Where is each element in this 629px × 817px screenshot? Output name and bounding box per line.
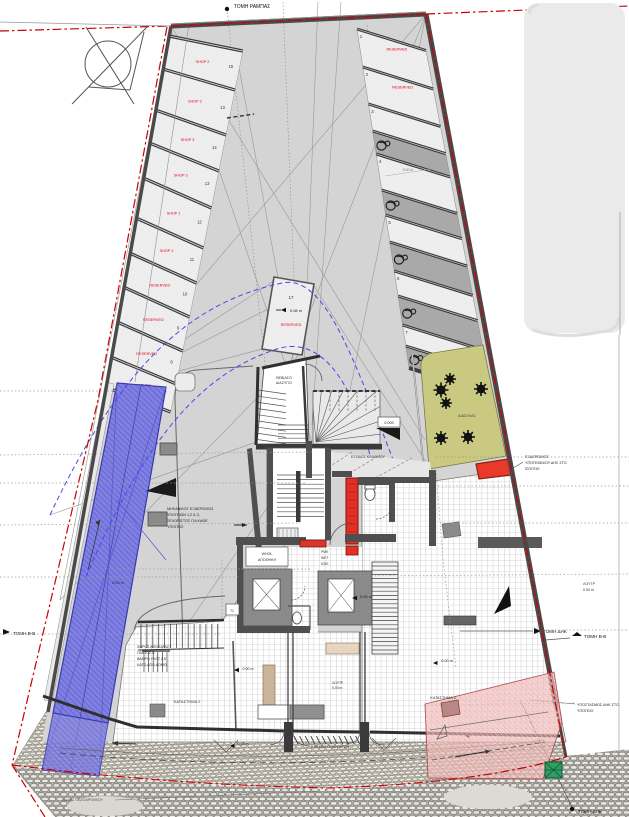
svg-text:ΥΠΟΓΕΙΟ: ΥΠΟΓΕΙΟ [577, 709, 594, 713]
svg-text:RESERVED: RESERVED [386, 47, 407, 51]
svg-text:0.00 m: 0.00 m [360, 594, 373, 599]
svg-text:0.08 m: 0.08 m [290, 308, 303, 313]
svg-text:ΚΑΤΑΣΤΗΜΑ 3: ΚΑΤΑΣΤΗΜΑ 3 [430, 696, 455, 700]
svg-text:RESERVED: RESERVED [143, 318, 164, 322]
svg-text:10: 10 [183, 292, 188, 297]
svg-text:RESERVED: RESERVED [392, 85, 413, 89]
svg-text:ΥΠΟΣΤΑΣΜΟΣ ΔΗΚ ΣΤΟ: ΥΠΟΣΤΑΣΜΟΣ ΔΗΚ ΣΤΟ [577, 703, 619, 707]
svg-text:WHOL: WHOL [262, 552, 273, 556]
svg-text:SHOP 1: SHOP 1 [159, 249, 173, 253]
svg-text:SHOP 2: SHOP 2 [188, 100, 202, 104]
svg-text:ΤΟΜΗ ΡΑΜΠΑΣ: ΤΟΜΗ ΡΑΜΠΑΣ [234, 4, 271, 10]
svg-text:8 ΘΕΣΕΙΣ ΠΟΔΗΛΑΤΩΝ: 8 ΘΕΣΕΙΣ ΠΟΔΗΛΑΤΩΝ [311, 745, 350, 749]
svg-text:ΑΠΟΘΗΚΗ: ΑΠΟΘΗΚΗ [258, 558, 277, 562]
svg-text:0.00 m: 0.00 m [112, 581, 124, 585]
svg-text:13: 13 [205, 181, 210, 186]
svg-text:ΛΟΥΤΡ: ΛΟΥΤΡ [583, 582, 596, 586]
svg-text:ΥΠΟΓΕΙΩΝ 1,2 & 3,: ΥΠΟΓΕΙΩΝ 1,2 & 3, [167, 513, 200, 517]
svg-text:RESERVED: RESERVED [149, 284, 170, 288]
svg-text:ΧΩΡΟΣ ΑΠΟΚΑΤΑΣΤ.: ΧΩΡΟΣ ΑΠΟΚΑΤΑΣΤ. [137, 645, 172, 649]
svg-text:ΤΟΜΗ ΔΗΚ: ΤΟΜΗ ΔΗΚ [578, 809, 603, 814]
svg-text:SHOP 2: SHOP 2 [195, 60, 209, 64]
svg-text:SHOP 1: SHOP 1 [167, 212, 181, 216]
svg-text:ΕΞΟΔΟΣ ΚΙΝΔΥΝΟΥ: ΕΞΟΔΟΣ ΚΙΝΔΥΝΟΥ [351, 455, 386, 459]
svg-text:13: 13 [220, 105, 225, 110]
svg-text:ΒΕΒΙΑΣΟ: ΒΕΒΙΑΣΟ [276, 376, 292, 380]
svg-text:15: 15 [229, 64, 234, 69]
svg-text:11: 11 [190, 257, 195, 262]
svg-text:ΤΟΜΗ Β-Β: ΤΟΜΗ Β-Β [13, 631, 35, 636]
svg-text:ΚΣΙΕ: ΚΣΙΕ [321, 562, 329, 566]
svg-text:0.00 m: 0.00 m [243, 667, 254, 671]
svg-text:0.00 m: 0.00 m [583, 588, 594, 592]
svg-text:RESERVED: RESERVED [281, 323, 302, 327]
svg-text:ΡΜΚ: ΡΜΚ [321, 550, 329, 554]
svg-text:ΞΕΧΩΡΙΣΤΟΣ ΓΙΑ ΚΑΘΕ: ΞΕΧΩΡΙΣΤΟΣ ΓΙΑ ΚΑΘΕ [167, 519, 208, 523]
svg-text:ΚΑΤΩ ΑΠΟ ΔΟΜΟ: ΚΑΤΩ ΑΠΟ ΔΟΜΟ [137, 663, 167, 667]
svg-text:ΒΑΘΡΟ ΥΛΟΤ 2.5: ΒΑΘΡΟ ΥΛΟΤ 2.5 [137, 657, 166, 661]
svg-text:12: 12 [197, 220, 202, 225]
svg-text:5.00 m: 5.00 m [403, 168, 414, 172]
svg-text:ΔΙΑΣΠΛΑΣ: ΔΙΑΣΠΛΑΣ [458, 414, 476, 418]
svg-text:ΤΟΜΗ Β-Β: ΤΟΜΗ Β-Β [584, 634, 606, 639]
svg-text:17: 17 [288, 295, 294, 300]
svg-text:ΠΛΑΤΟΣ 5.: ΠΛΑΤΟΣ 5. [137, 651, 155, 655]
svg-text:0.00 m: 0.00 m [332, 686, 343, 690]
svg-text:0.04 m: 0.04 m [238, 742, 249, 746]
svg-text:ΥΠΟΓΕΙΟ: ΥΠΟΓΕΙΟ [167, 525, 184, 529]
svg-text:ΚΑΤΑΣΤΗΜΑ 2: ΚΑΤΑΣΤΗΜΑ 2 [174, 699, 202, 704]
svg-text:0.00 m: 0.00 m [441, 659, 453, 663]
svg-text:ΔΙΑΖΥΓΙΟ: ΔΙΑΖΥΓΙΟ [276, 381, 292, 385]
svg-text:SHOP 3: SHOP 3 [174, 174, 188, 178]
svg-text:ΛΟΥΤΡ: ΛΟΥΤΡ [332, 681, 344, 685]
svg-text:71: 71 [230, 609, 234, 613]
svg-text:ΙΣΟΓΕΙΟ: ΙΣΟΓΕΙΟ [525, 467, 540, 471]
svg-text:14: 14 [212, 145, 217, 150]
svg-text:ΥΠΟΓΕΙΩΝ/ΟΥ ΔΗΣ ΣΤΟ: ΥΠΟΓΕΙΩΝ/ΟΥ ΔΗΣ ΣΤΟ [525, 461, 567, 465]
svg-text:0.000: 0.000 [384, 421, 394, 425]
svg-text:ΜΗΧΑΝΙΚΟΣ ΕΞΑΕΡΙΣΜΟΣ: ΜΗΧΑΝΙΚΟΣ ΕΞΑΕΡΙΣΜΟΣ [167, 507, 214, 511]
svg-text:SHOP 3: SHOP 3 [181, 138, 195, 142]
svg-text:WET: WET [321, 556, 329, 560]
svg-text:ΟΔΙΚΟ ΠΕΖΟΔΡΟΜΙΟΥ: ΟΔΙΚΟ ΠΕΖΟΔΡΟΜΙΟΥ [62, 798, 103, 802]
